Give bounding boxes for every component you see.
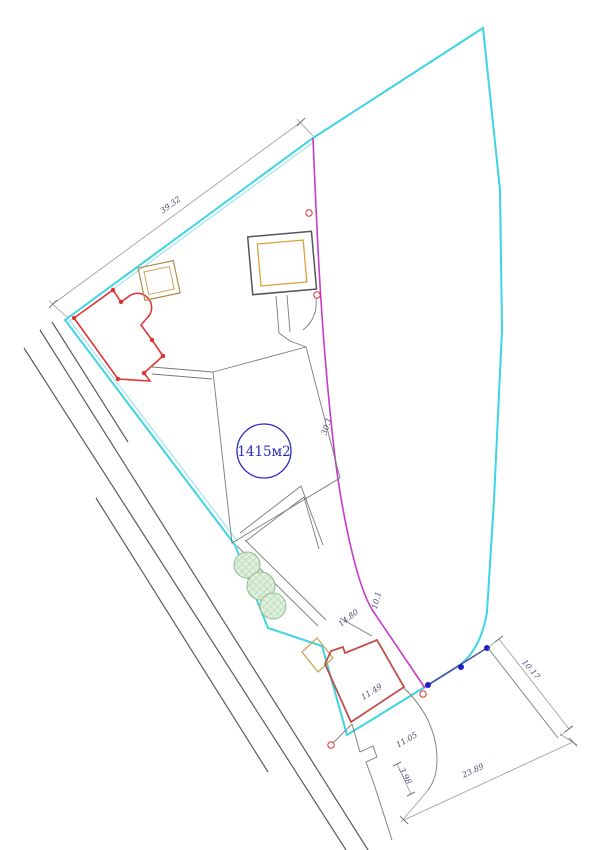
- boundary-marker: [420, 691, 426, 697]
- dim-label-top-left: 39.32: [159, 195, 183, 216]
- seg-label-bend-upper: 10.1: [370, 591, 383, 611]
- outer-boundary: [65, 28, 502, 735]
- seg-label-bend-lower: 14.80: [337, 607, 361, 628]
- dim-label-road-front: 23.89: [460, 762, 485, 780]
- garden-house: [248, 231, 317, 294]
- dimension-east-segment: 10.17: [490, 636, 573, 736]
- dim-label-building-len: 11.49: [360, 682, 384, 702]
- dimension-road-frontage: 23.89: [400, 734, 577, 824]
- dim-label-east: 10.17: [520, 658, 542, 682]
- area-label-group: 1415м2: [237, 424, 291, 478]
- boundary-marker: [314, 292, 320, 298]
- bottom-building-outline: [325, 640, 404, 722]
- inner-boundary-line: [313, 138, 425, 688]
- area-label: 1415м2: [237, 444, 290, 460]
- boundary-markers: [306, 210, 426, 748]
- boundary-marker: [306, 210, 312, 216]
- garden-house-inner: [257, 240, 306, 286]
- shed-inner: [144, 267, 174, 295]
- outer-boundary-line: [65, 28, 502, 735]
- dimension-top-left-edge: 39.32: [49, 118, 313, 317]
- survey-point: [458, 664, 464, 670]
- dim-label-building-offset: 11.05: [395, 730, 419, 749]
- outer-boundary-inner-line: [67, 141, 315, 542]
- trees: [234, 552, 286, 619]
- survey-segment: [425, 645, 558, 738]
- dimension-road-gap: 3.98: [393, 762, 415, 796]
- road-lines: [24, 322, 368, 850]
- site-plan-drawing: 39.32: [0, 0, 601, 850]
- yard-paths: [152, 295, 437, 840]
- dim-label-road-gap: 3.98: [397, 766, 413, 786]
- garden-house-outer: [248, 231, 317, 294]
- inner-boundary: [306, 138, 426, 748]
- main-house: [72, 288, 165, 381]
- tree-icon: [260, 593, 286, 619]
- site-plan-page: 39.32: [0, 0, 601, 850]
- survey-line: [428, 648, 487, 685]
- survey-point: [425, 682, 431, 688]
